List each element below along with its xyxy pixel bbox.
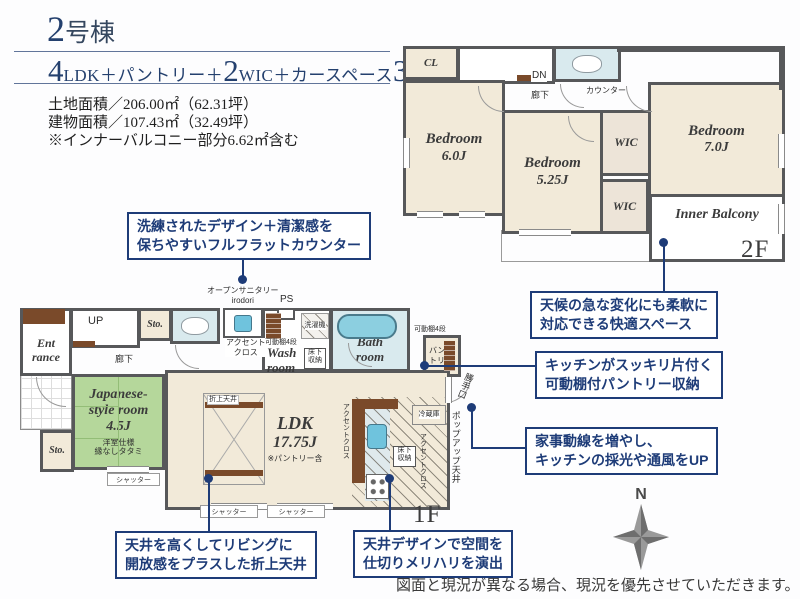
compass-n-label: N	[635, 486, 647, 503]
bedroom-525j-name: Bedroom	[524, 155, 581, 172]
hallway-1f-label: 廊下	[115, 354, 133, 365]
toilet-fixture	[572, 55, 602, 73]
pantry-shelf-label: 可動棚4段	[414, 326, 446, 334]
compass: N	[606, 482, 676, 577]
washbasin	[234, 315, 252, 332]
window	[778, 204, 785, 234]
underfloor-kitchen-line2: 収納	[394, 455, 415, 463]
tatami-line	[75, 406, 118, 407]
header-divider-bottom	[14, 83, 390, 84]
wall-segment	[617, 46, 785, 52]
callout-inner-balcony: 天候の急な変化にも柔軟に 対応できる快適スペース	[530, 291, 718, 339]
wic-2-label: WIC	[613, 200, 636, 214]
room-toilet-2f	[553, 46, 621, 82]
hallway-2f-label: 廊下	[531, 90, 549, 101]
room-storage-2: Sto.	[40, 430, 74, 472]
underfloor-storage-wash: 床下 収納	[304, 348, 326, 369]
bathtub	[337, 314, 397, 339]
door-arc	[626, 86, 652, 112]
callout-counter-line1: 洗練されたデザイン＋清潔感を	[137, 217, 361, 236]
connector-line	[389, 481, 391, 530]
accent-cloth-v2: アクセントクロス	[418, 433, 426, 497]
stairs-up-label: UP	[87, 315, 104, 328]
tatami-line	[118, 377, 119, 467]
washroom-line2: room	[267, 361, 296, 376]
inner-balcony-label: Inner Balcony	[673, 207, 761, 223]
callout-counter: 洗練されたデザイン＋清潔感を 保ちやすいフルフラットカウンター	[127, 212, 371, 260]
ps-label: PS	[280, 294, 293, 306]
page-title-text: 号棟	[65, 20, 115, 47]
shutter-tag-3: シャッター	[267, 505, 325, 518]
bedroom-7j-size: 7.0J	[704, 140, 729, 156]
floor-label-2f: 2F	[741, 236, 769, 264]
ldk-label: LDK 17.75J ※パントリー含	[250, 413, 340, 464]
open-sanitary-line1: オープンサニタリー	[207, 286, 279, 296]
callout-inner-balcony-line2: 対応できる快適スペース	[540, 315, 708, 334]
connector-line	[663, 245, 665, 291]
open-sanitary-line2: irodori	[207, 296, 279, 306]
tatami-line	[75, 438, 118, 439]
ldk-note: ※パントリー含	[250, 454, 340, 464]
shutter-label-1: シャッター	[116, 475, 151, 485]
compass-rose-icon: N	[606, 482, 676, 577]
room-storage-1: Sto.	[138, 308, 172, 341]
ldk-name: LDK	[250, 413, 340, 434]
washing-machine-label: 洗濯機	[305, 322, 326, 330]
accent-cloth-line2: クロス	[226, 348, 266, 358]
callout-ceiling-design: 天井デザインで空間を 仕切りメリハリを演出	[353, 530, 513, 578]
callout-ceiling-design-line1: 天井デザインで空間を	[363, 535, 503, 554]
toilet-fixture	[181, 317, 209, 335]
window	[778, 134, 785, 168]
connector-line	[208, 481, 210, 531]
folded-ceiling-label: 折上天井	[207, 395, 239, 405]
back-door-opening	[445, 377, 452, 403]
door-arc	[175, 345, 199, 369]
page-title: 2号棟	[47, 8, 115, 50]
washing-machine: 洗濯機	[301, 313, 329, 339]
callout-housework: 家事動線を増やし、 キッチンの採光や通風をUP	[525, 427, 718, 475]
accent-cloth-v1: アクセントクロス	[341, 403, 349, 467]
window	[403, 138, 410, 168]
closet-label: CL	[424, 57, 438, 70]
ldk-size: 17.75J	[250, 434, 340, 452]
connector-line	[471, 411, 473, 449]
callout-folded-ceiling-line1: 天井を高くしてリビングに	[125, 536, 307, 555]
callout-folded-ceiling-line2: 開放感をプラスした折上天井	[125, 555, 307, 574]
washroom-label: Wash room	[267, 346, 296, 376]
wic-1-label: WIC	[614, 136, 637, 150]
popup-ceiling-label: ポップアップ天井	[450, 411, 461, 497]
window	[417, 211, 443, 218]
kitchen-counter-side	[352, 399, 365, 483]
accent-cloth-line1: アクセント	[226, 338, 266, 348]
room-wic-2: WIC	[600, 179, 649, 234]
connector-line	[428, 365, 536, 367]
floor-plan-1f: Ent rance UP 廊下 Sto. アクセント クロス 可動棚4段 Was…	[15, 305, 459, 517]
shutter-label-2: シャッター	[212, 507, 247, 517]
connector-dot	[659, 238, 668, 247]
callout-housework-line2: キッチンの採光や通風をUP	[535, 451, 708, 470]
callout-folded-ceiling: 天井を高くしてリビングに 開放感をプラスした折上天井	[115, 531, 317, 579]
sanitary-nook	[223, 308, 263, 338]
door-arc	[560, 84, 584, 108]
floor-plan-2f: CL DN 廊下 カウンター Bedroom 6.0J Bedroom 5.25…	[403, 46, 785, 272]
storage-2-label: Sto.	[49, 445, 65, 457]
kitchen-sink	[367, 424, 387, 449]
room-wic-1: WIC	[600, 110, 652, 176]
accent-cloth-sanitary-label: アクセント クロス	[225, 338, 267, 357]
open-sanitary-label: オープンサニタリー irodori	[207, 286, 279, 305]
room-closet-cl: CL	[403, 46, 459, 80]
page-title-number: 2	[47, 9, 65, 49]
window	[519, 229, 571, 236]
washroom-line1: Wash	[267, 346, 296, 361]
entrance-name-1: Ent	[37, 337, 55, 351]
floor-label-1f: 1F	[413, 501, 441, 529]
storage-1-label: Sto.	[147, 319, 163, 331]
underfloor-storage-kitchen: 床下 収納	[393, 446, 416, 467]
callout-pantry: キッチンがスッキリ片付く 可動棚付パントリー収納	[535, 351, 723, 399]
refrigerator: 冷蔵庫	[412, 405, 446, 425]
window	[459, 211, 485, 218]
stairs-dn-label: DN	[531, 70, 547, 82]
callout-counter-line2: 保ちやすいフルフラットカウンター	[137, 236, 361, 255]
bedroom-6j-size: 6.0J	[442, 149, 467, 165]
refrigerator-label: 冷蔵庫	[419, 411, 440, 419]
shutter-label-3: シャッター	[279, 507, 314, 517]
shoe-cabinet	[23, 309, 65, 324]
bedroom-525j-size: 5.25J	[537, 173, 569, 189]
callout-pantry-line2: 可動棚付パントリー収納	[545, 375, 713, 394]
wall-segment	[779, 46, 785, 90]
balcony-note: ※インナーバルコニー部分6.62㎡含む	[48, 129, 299, 150]
bedroom-6j-name: Bedroom	[426, 131, 483, 148]
connector-line	[471, 447, 526, 449]
underfloor-wash-line2: 収納	[305, 357, 325, 365]
connector-dot	[238, 275, 247, 284]
entrance-name-2: rance	[32, 351, 60, 365]
bedroom-7j-name: Bedroom	[688, 123, 745, 140]
connector-dot	[467, 403, 476, 412]
wash-shelf	[266, 313, 281, 339]
stair-step	[73, 341, 95, 347]
callout-ceiling-design-line2: 仕切りメリハリを演出	[363, 554, 503, 573]
pantry-line1: バン	[429, 346, 445, 356]
header-divider-top	[14, 51, 390, 52]
counter-label: カウンター	[586, 86, 626, 96]
connector-dot	[385, 474, 394, 483]
callout-housework-line1: 家事動線を増やし、	[535, 432, 708, 451]
window	[107, 466, 149, 473]
room-toilet-1f	[170, 308, 220, 344]
ceiling-beam	[205, 470, 263, 476]
room-bedroom-7j: Bedroom 7.0J	[648, 82, 785, 197]
callout-inner-balcony-line1: 天候の急な変化にも柔軟に	[540, 296, 708, 315]
connector-dot	[204, 474, 213, 483]
shutter-tag-1: シャッター	[107, 473, 160, 486]
connector-dot	[420, 361, 429, 370]
callout-pantry-line1: キッチンがスッキリ片付く	[545, 356, 713, 375]
